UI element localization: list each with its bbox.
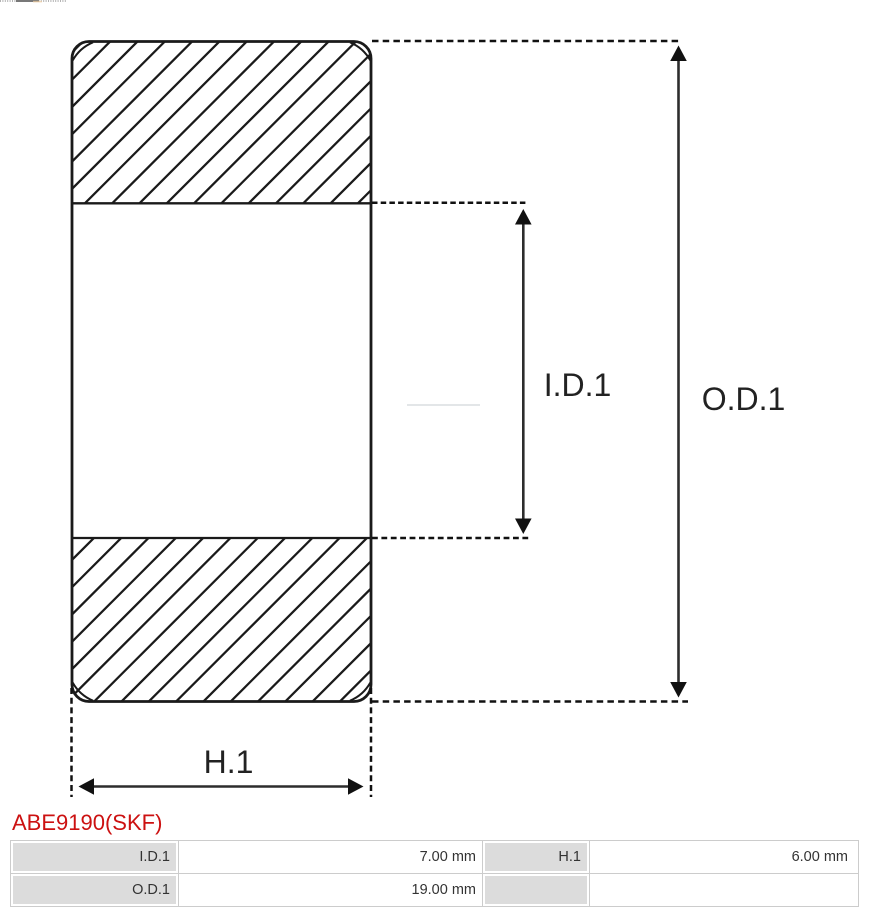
svg-text:I.D.1: I.D.1 [544, 367, 612, 403]
svg-text:O.D.1: O.D.1 [702, 381, 786, 417]
svg-text:H.1: H.1 [204, 744, 254, 780]
